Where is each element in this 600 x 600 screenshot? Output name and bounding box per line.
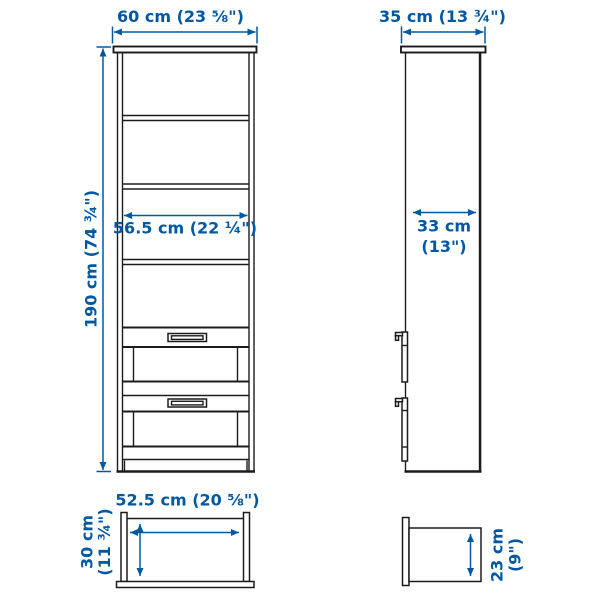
side-inner-depth-dimension: 33 cm (13")	[413, 213, 476, 257]
drawer-width-label: 52.5 cm (20 ⅝")	[115, 491, 259, 510]
drawer-height-label-1: 23 cm	[487, 528, 506, 582]
drawer-depth-label-2: (11 ¾")	[95, 508, 114, 575]
front-height-dimension: 190 cm (74 ¾")	[82, 47, 112, 472]
drawer-top-view	[117, 513, 255, 588]
side-inner-depth-label-1: 33 cm	[417, 217, 471, 236]
front-top-board	[114, 47, 257, 53]
side-carcass	[406, 53, 481, 472]
front-plinth	[123, 460, 250, 472]
drawer-top-right-side	[244, 513, 250, 582]
side-top-board	[401, 47, 486, 53]
front-width-dimension: 60 cm (23 ⅝")	[113, 7, 258, 44]
side-depth-label: 35 cm (13 ¾")	[379, 7, 506, 26]
front-drawer-1	[123, 334, 250, 382]
front-inner-width-label: 56.5 cm (22 ¼")	[113, 219, 257, 238]
side-inner-depth-label-2: (13")	[421, 237, 466, 256]
front-shelf-3	[123, 260, 250, 265]
drawer-height-label-2: (9")	[505, 538, 524, 572]
front-drawer-2	[123, 396, 250, 447]
drawer-depth-label-1: 30 cm	[77, 515, 96, 569]
front-shelf-2	[123, 184, 250, 189]
front-width-label: 60 cm (23 ⅝")	[117, 7, 244, 26]
drawer-top-front	[117, 582, 255, 588]
drawer-top-left-side	[121, 513, 127, 582]
bookcase-front-view	[114, 47, 257, 472]
bookcase-side-view	[396, 47, 486, 472]
side-drawer-2-front	[396, 398, 408, 461]
front-shelf-1	[123, 116, 250, 121]
side-drawer-1-front	[396, 332, 408, 382]
drawer-side-view	[403, 518, 482, 586]
front-inner-width-dimension: 56.5 cm (22 ¼")	[113, 216, 257, 238]
drawer-1-handle	[168, 334, 207, 342]
diagram-canvas: 60 cm (23 ⅝") 190 cm (74 ¾") 56.5 cm (22…	[0, 0, 600, 600]
drawer-width-dimension: 52.5 cm (20 ⅝")	[115, 491, 259, 533]
drawer-2-handle	[168, 399, 207, 407]
front-height-label: 190 cm (74 ¾")	[82, 190, 101, 328]
drawer-side-front-panel	[403, 518, 410, 586]
side-depth-dimension: 35 cm (13 ¾")	[379, 7, 506, 44]
product-dimensions-diagram: 60 cm (23 ⅝") 190 cm (74 ¾") 56.5 cm (22…	[0, 0, 600, 600]
